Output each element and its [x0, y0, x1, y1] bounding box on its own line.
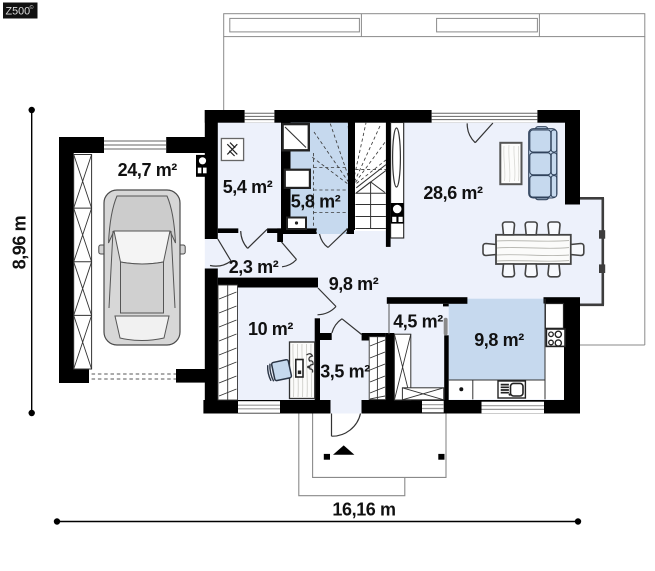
svg-text:5,8 m²: 5,8 m² — [291, 192, 341, 212]
svg-text:9,8 m²: 9,8 m² — [329, 274, 379, 294]
svg-text:5,4 m²: 5,4 m² — [223, 177, 273, 197]
svg-text:©: © — [30, 4, 34, 11]
svg-text:8,96 m: 8,96 m — [10, 216, 30, 270]
svg-text:9,8 m²: 9,8 m² — [474, 330, 524, 350]
svg-text:10 m²: 10 m² — [248, 319, 293, 339]
svg-text:3,5 m²: 3,5 m² — [320, 362, 370, 382]
svg-text:Z500: Z500 — [6, 6, 31, 18]
svg-text:16,16 m: 16,16 m — [332, 499, 395, 519]
svg-text:28,6 m²: 28,6 m² — [423, 183, 483, 203]
svg-text:2,3 m²: 2,3 m² — [229, 257, 279, 277]
svg-text:4,5 m²: 4,5 m² — [393, 312, 443, 332]
svg-text:24,7 m²: 24,7 m² — [118, 160, 178, 180]
